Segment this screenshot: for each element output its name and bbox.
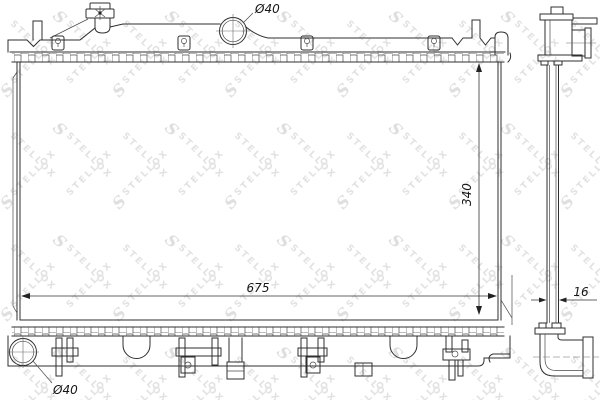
dim-core-height-label: 340 bbox=[460, 183, 474, 206]
radiator-technical-drawing: S STELLOX S STELLOX STELLOX STELLOX bbox=[0, 0, 600, 400]
dim-core-width-label: 675 bbox=[247, 281, 270, 295]
crimp-strip-bottom bbox=[12, 327, 504, 336]
dim-core-thickness-label: 16 bbox=[573, 285, 589, 299]
crimp-strip-top bbox=[12, 53, 504, 62]
dim-bottom-outlet-label: Ø40 bbox=[52, 383, 78, 397]
drawing-canvas: S STELLOX S STELLOX STELLOX STELLOX bbox=[0, 0, 600, 400]
dim-top-inlet-label: Ø40 bbox=[254, 2, 280, 16]
